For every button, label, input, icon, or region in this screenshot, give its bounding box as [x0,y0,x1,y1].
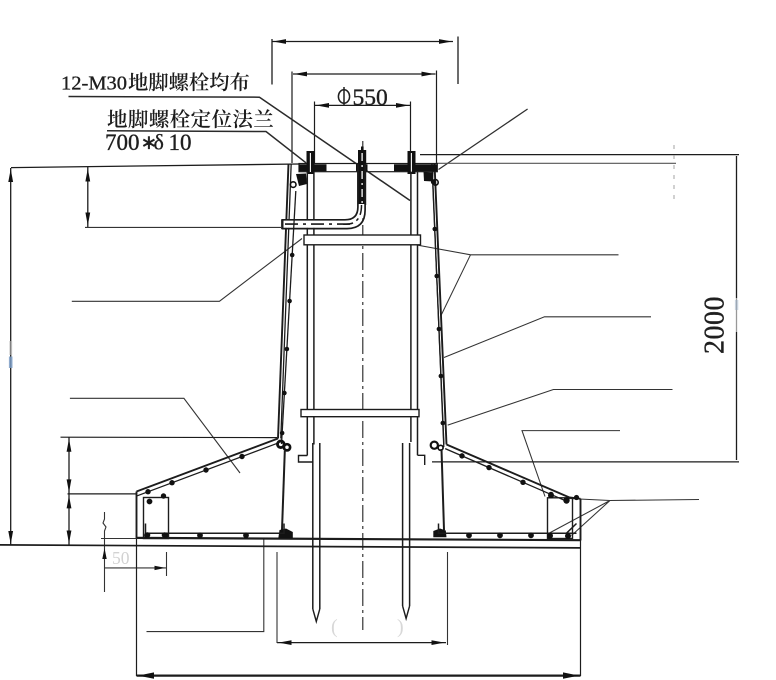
svg-text:10: 10 [169,130,192,155]
svg-text:12-M30: 12-M30 [61,73,127,95]
svg-text:): ) [397,616,404,638]
svg-text:(: ( [331,616,338,638]
svg-text:δ: δ [154,130,164,155]
svg-text:700: 700 [105,130,140,155]
svg-text:50: 50 [112,548,130,568]
svg-text:550: 550 [353,85,388,111]
svg-text:2000: 2000 [700,296,731,354]
